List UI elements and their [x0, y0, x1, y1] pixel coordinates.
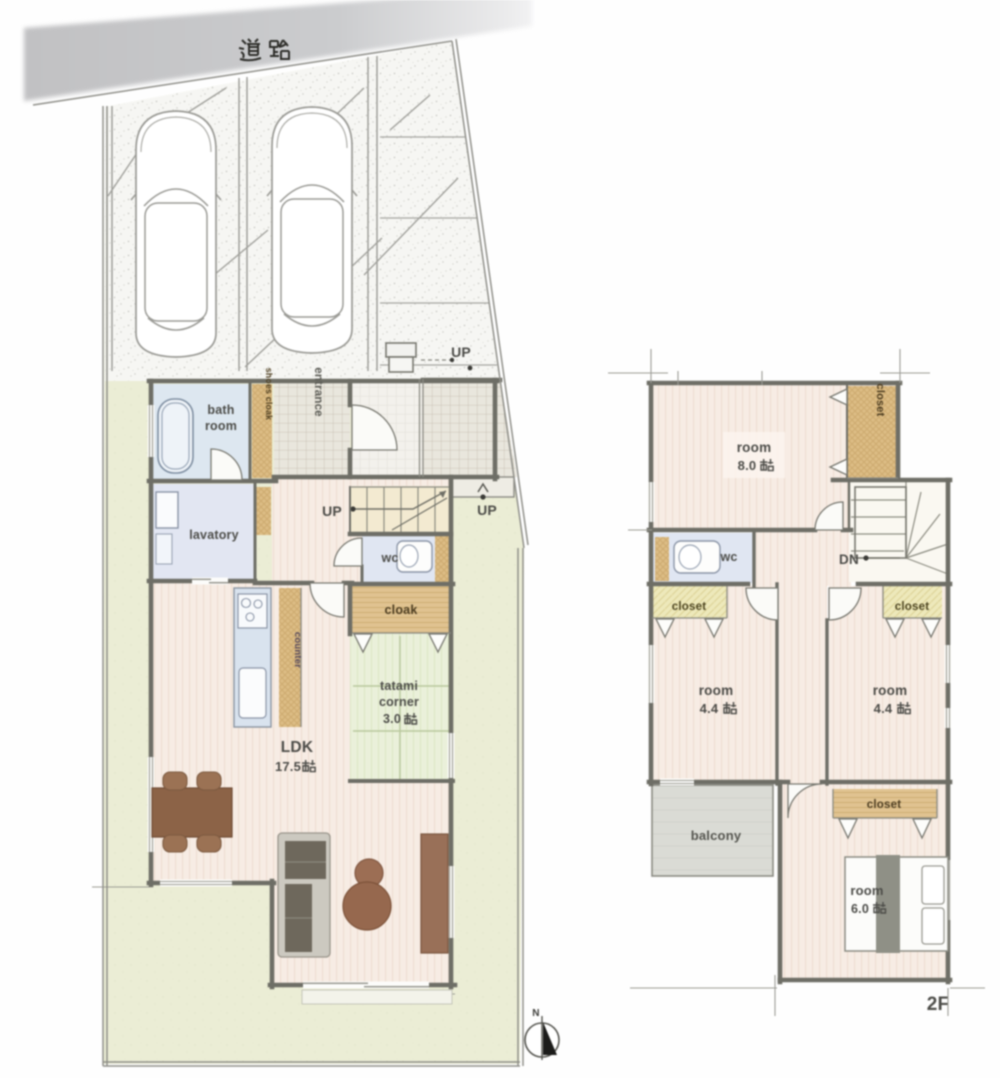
svg-text:wc: wc — [719, 550, 737, 564]
svg-text:LDK: LDK — [281, 739, 314, 756]
svg-text:counter: counter — [292, 632, 303, 668]
svg-text:DN: DN — [839, 552, 859, 567]
svg-text:2F: 2F — [927, 994, 950, 1015]
svg-text:room: room — [850, 883, 883, 898]
svg-text:room: room — [873, 683, 908, 698]
svg-text:room: room — [205, 419, 237, 433]
svg-text:4.4: 4.4 — [874, 701, 893, 716]
svg-text:corner: corner — [379, 695, 419, 709]
svg-text:closet: closet — [895, 601, 929, 613]
svg-text:balcony: balcony — [691, 828, 742, 843]
svg-text:closet: closet — [867, 799, 901, 811]
svg-text:6.0: 6.0 — [851, 902, 869, 916]
svg-text:shoes cloak: shoes cloak — [264, 368, 274, 421]
svg-text:room: room — [699, 683, 734, 698]
svg-text:3.0: 3.0 — [383, 712, 401, 726]
svg-text:lavatory: lavatory — [189, 528, 239, 542]
svg-text:entrance: entrance — [312, 367, 324, 417]
svg-text:bath: bath — [207, 403, 234, 417]
svg-text:tatami: tatami — [380, 679, 418, 693]
svg-text:N: N — [532, 1008, 539, 1019]
svg-text:8.0: 8.0 — [738, 458, 757, 473]
svg-text:UP: UP — [322, 503, 342, 519]
svg-text:closet: closet — [874, 384, 886, 417]
svg-text:4.4: 4.4 — [700, 701, 719, 716]
svg-text:room: room — [737, 440, 772, 455]
svg-text:UP: UP — [451, 344, 471, 360]
svg-text:UP: UP — [477, 502, 497, 518]
svg-text:closet: closet — [672, 601, 706, 613]
svg-text:cloak: cloak — [385, 603, 418, 617]
svg-text:17.5: 17.5 — [275, 759, 301, 774]
svg-text:wc: wc — [380, 551, 398, 565]
